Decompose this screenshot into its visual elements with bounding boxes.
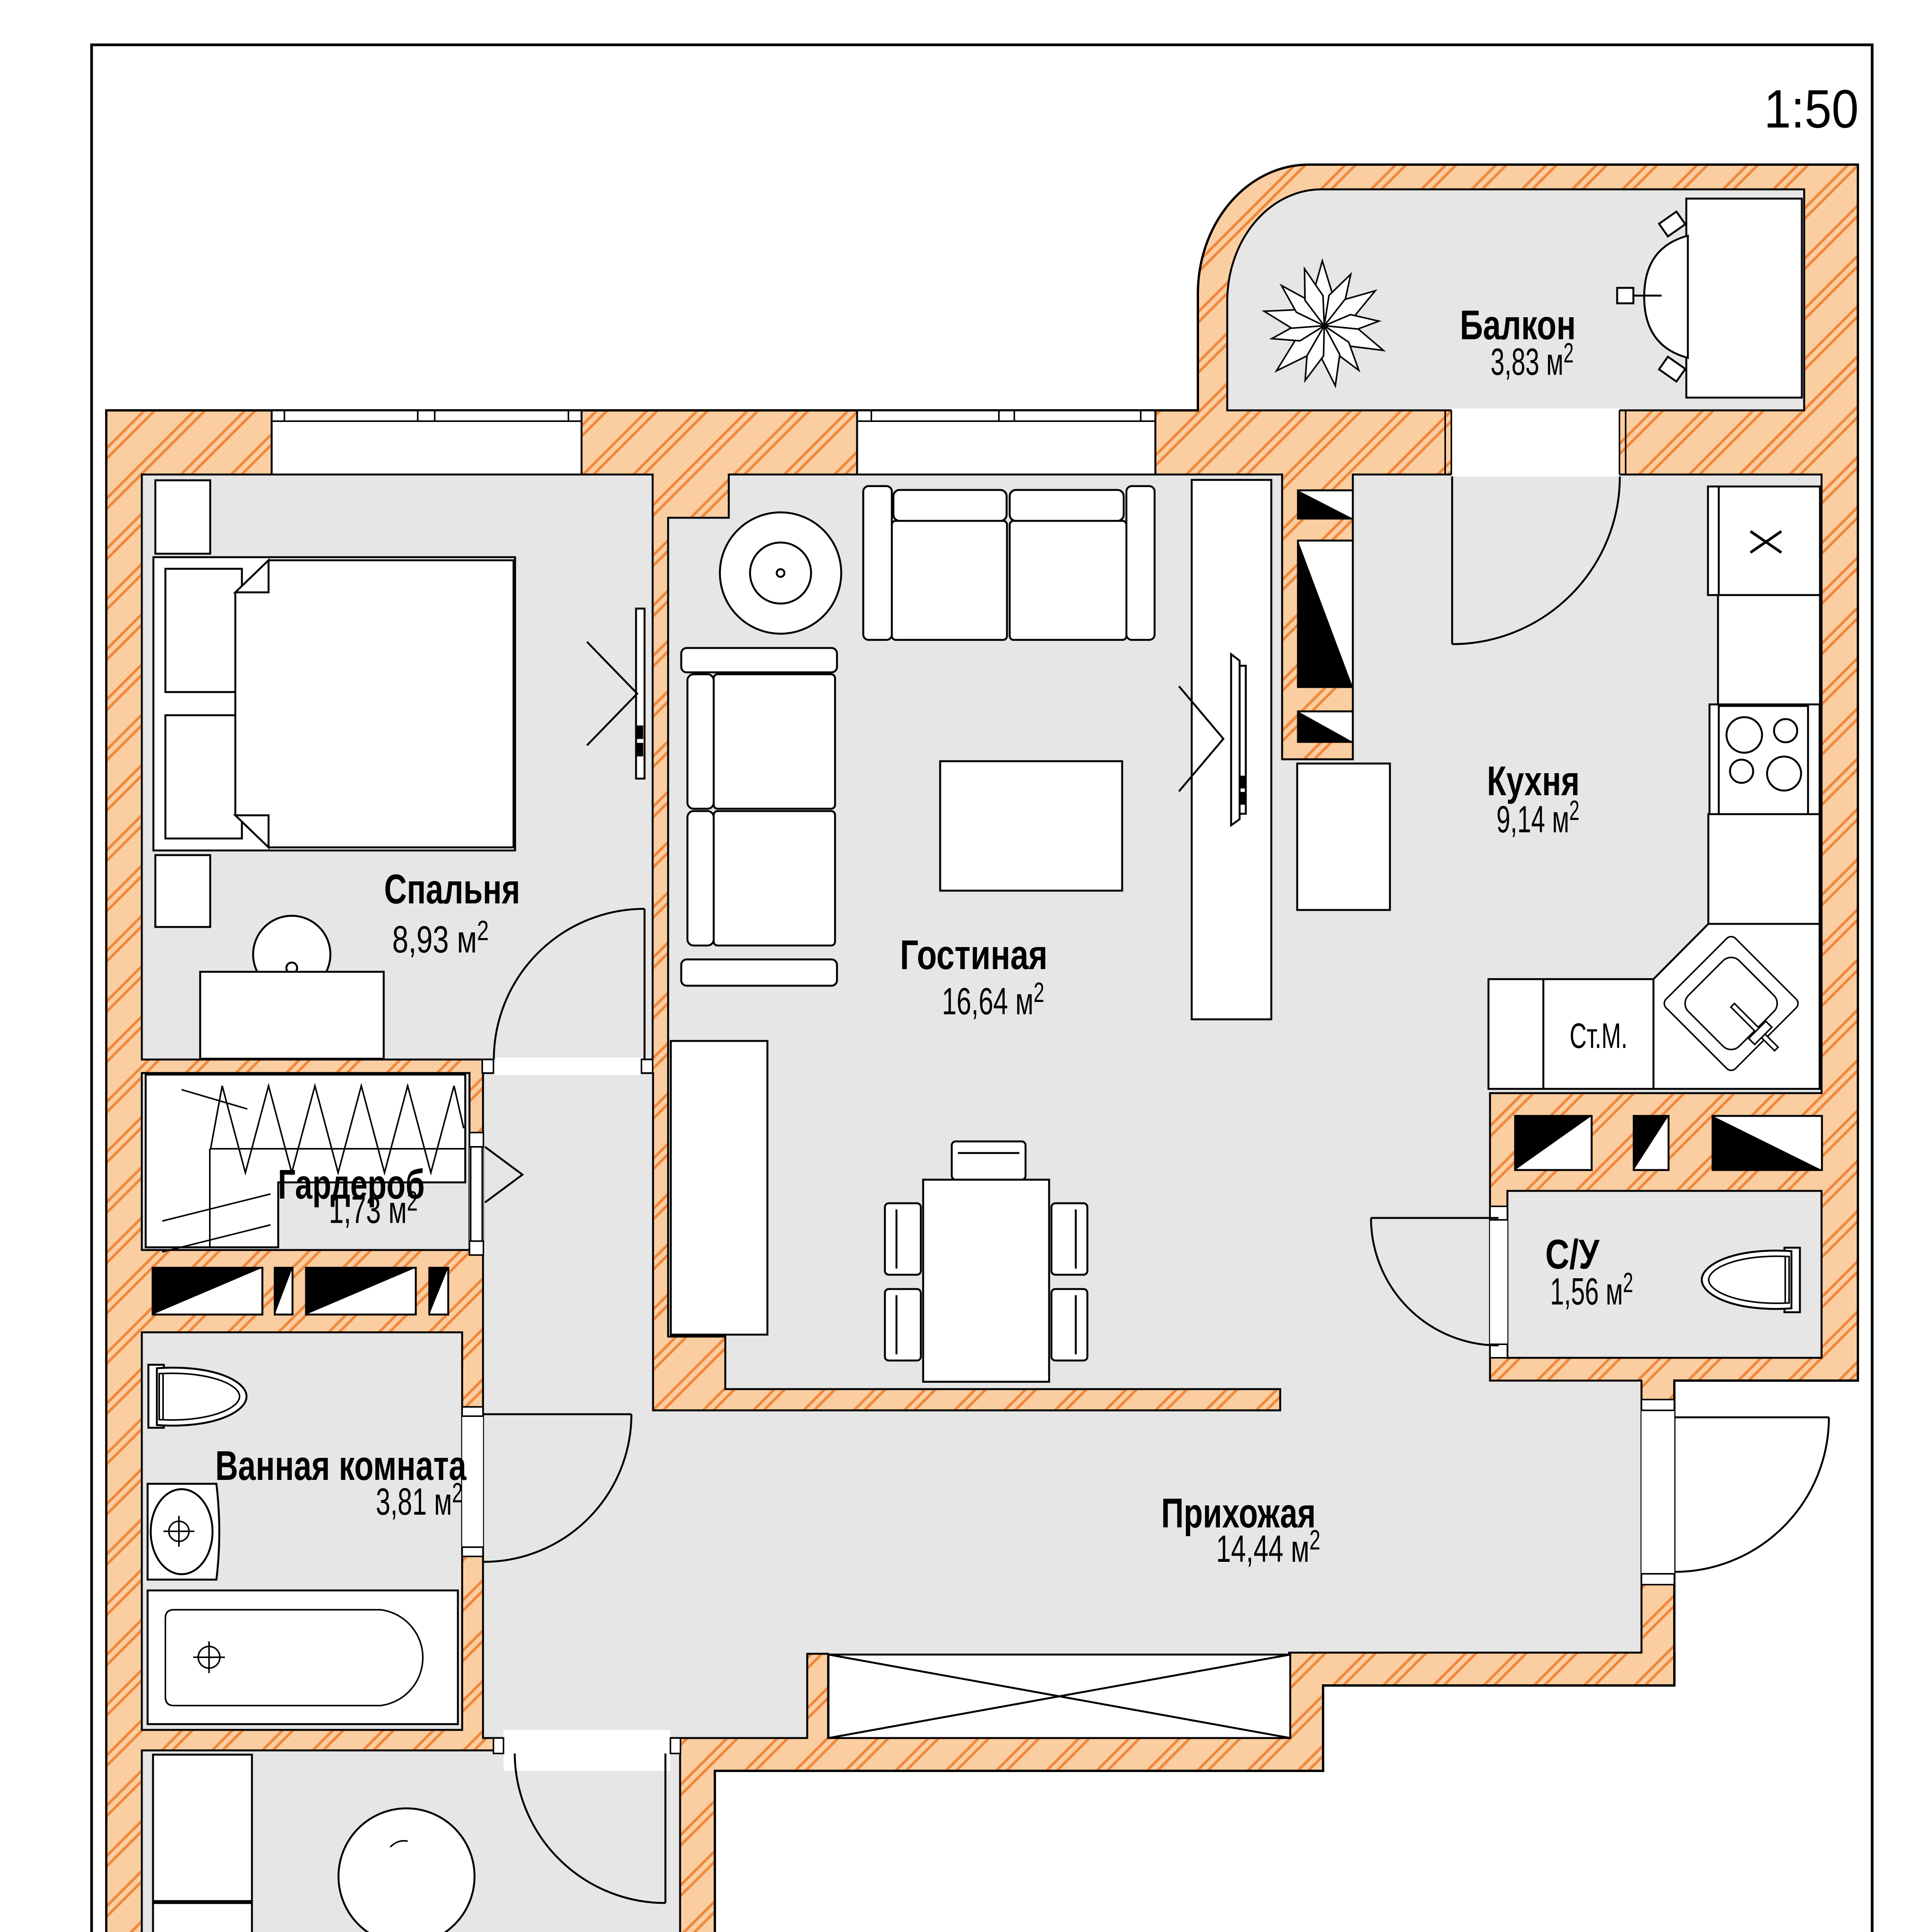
svg-text:Спальня: Спальня [384, 866, 520, 912]
svg-text:8,93 м2: 8,93 м2 [392, 915, 489, 961]
svg-text:Гостиная: Гостиная [900, 931, 1048, 978]
svg-text:1,56 м2: 1,56 м2 [1550, 1267, 1633, 1313]
svg-text:3,83 м2: 3,83 м2 [1491, 338, 1574, 383]
svg-text:3,81 м2: 3,81 м2 [376, 1478, 463, 1523]
svg-text:Кухня: Кухня [1487, 757, 1580, 804]
svg-text:16,64 м2: 16,64 м2 [942, 977, 1044, 1022]
svg-text:1:50: 1:50 [1764, 78, 1859, 139]
svg-text:1,73 м2: 1,73 м2 [329, 1186, 418, 1231]
svg-text:14,44 м2: 14,44 м2 [1216, 1525, 1320, 1570]
svg-text:9,14 м2: 9,14 м2 [1497, 795, 1580, 840]
svg-text:Ст.М.: Ст.М. [1570, 1016, 1628, 1056]
